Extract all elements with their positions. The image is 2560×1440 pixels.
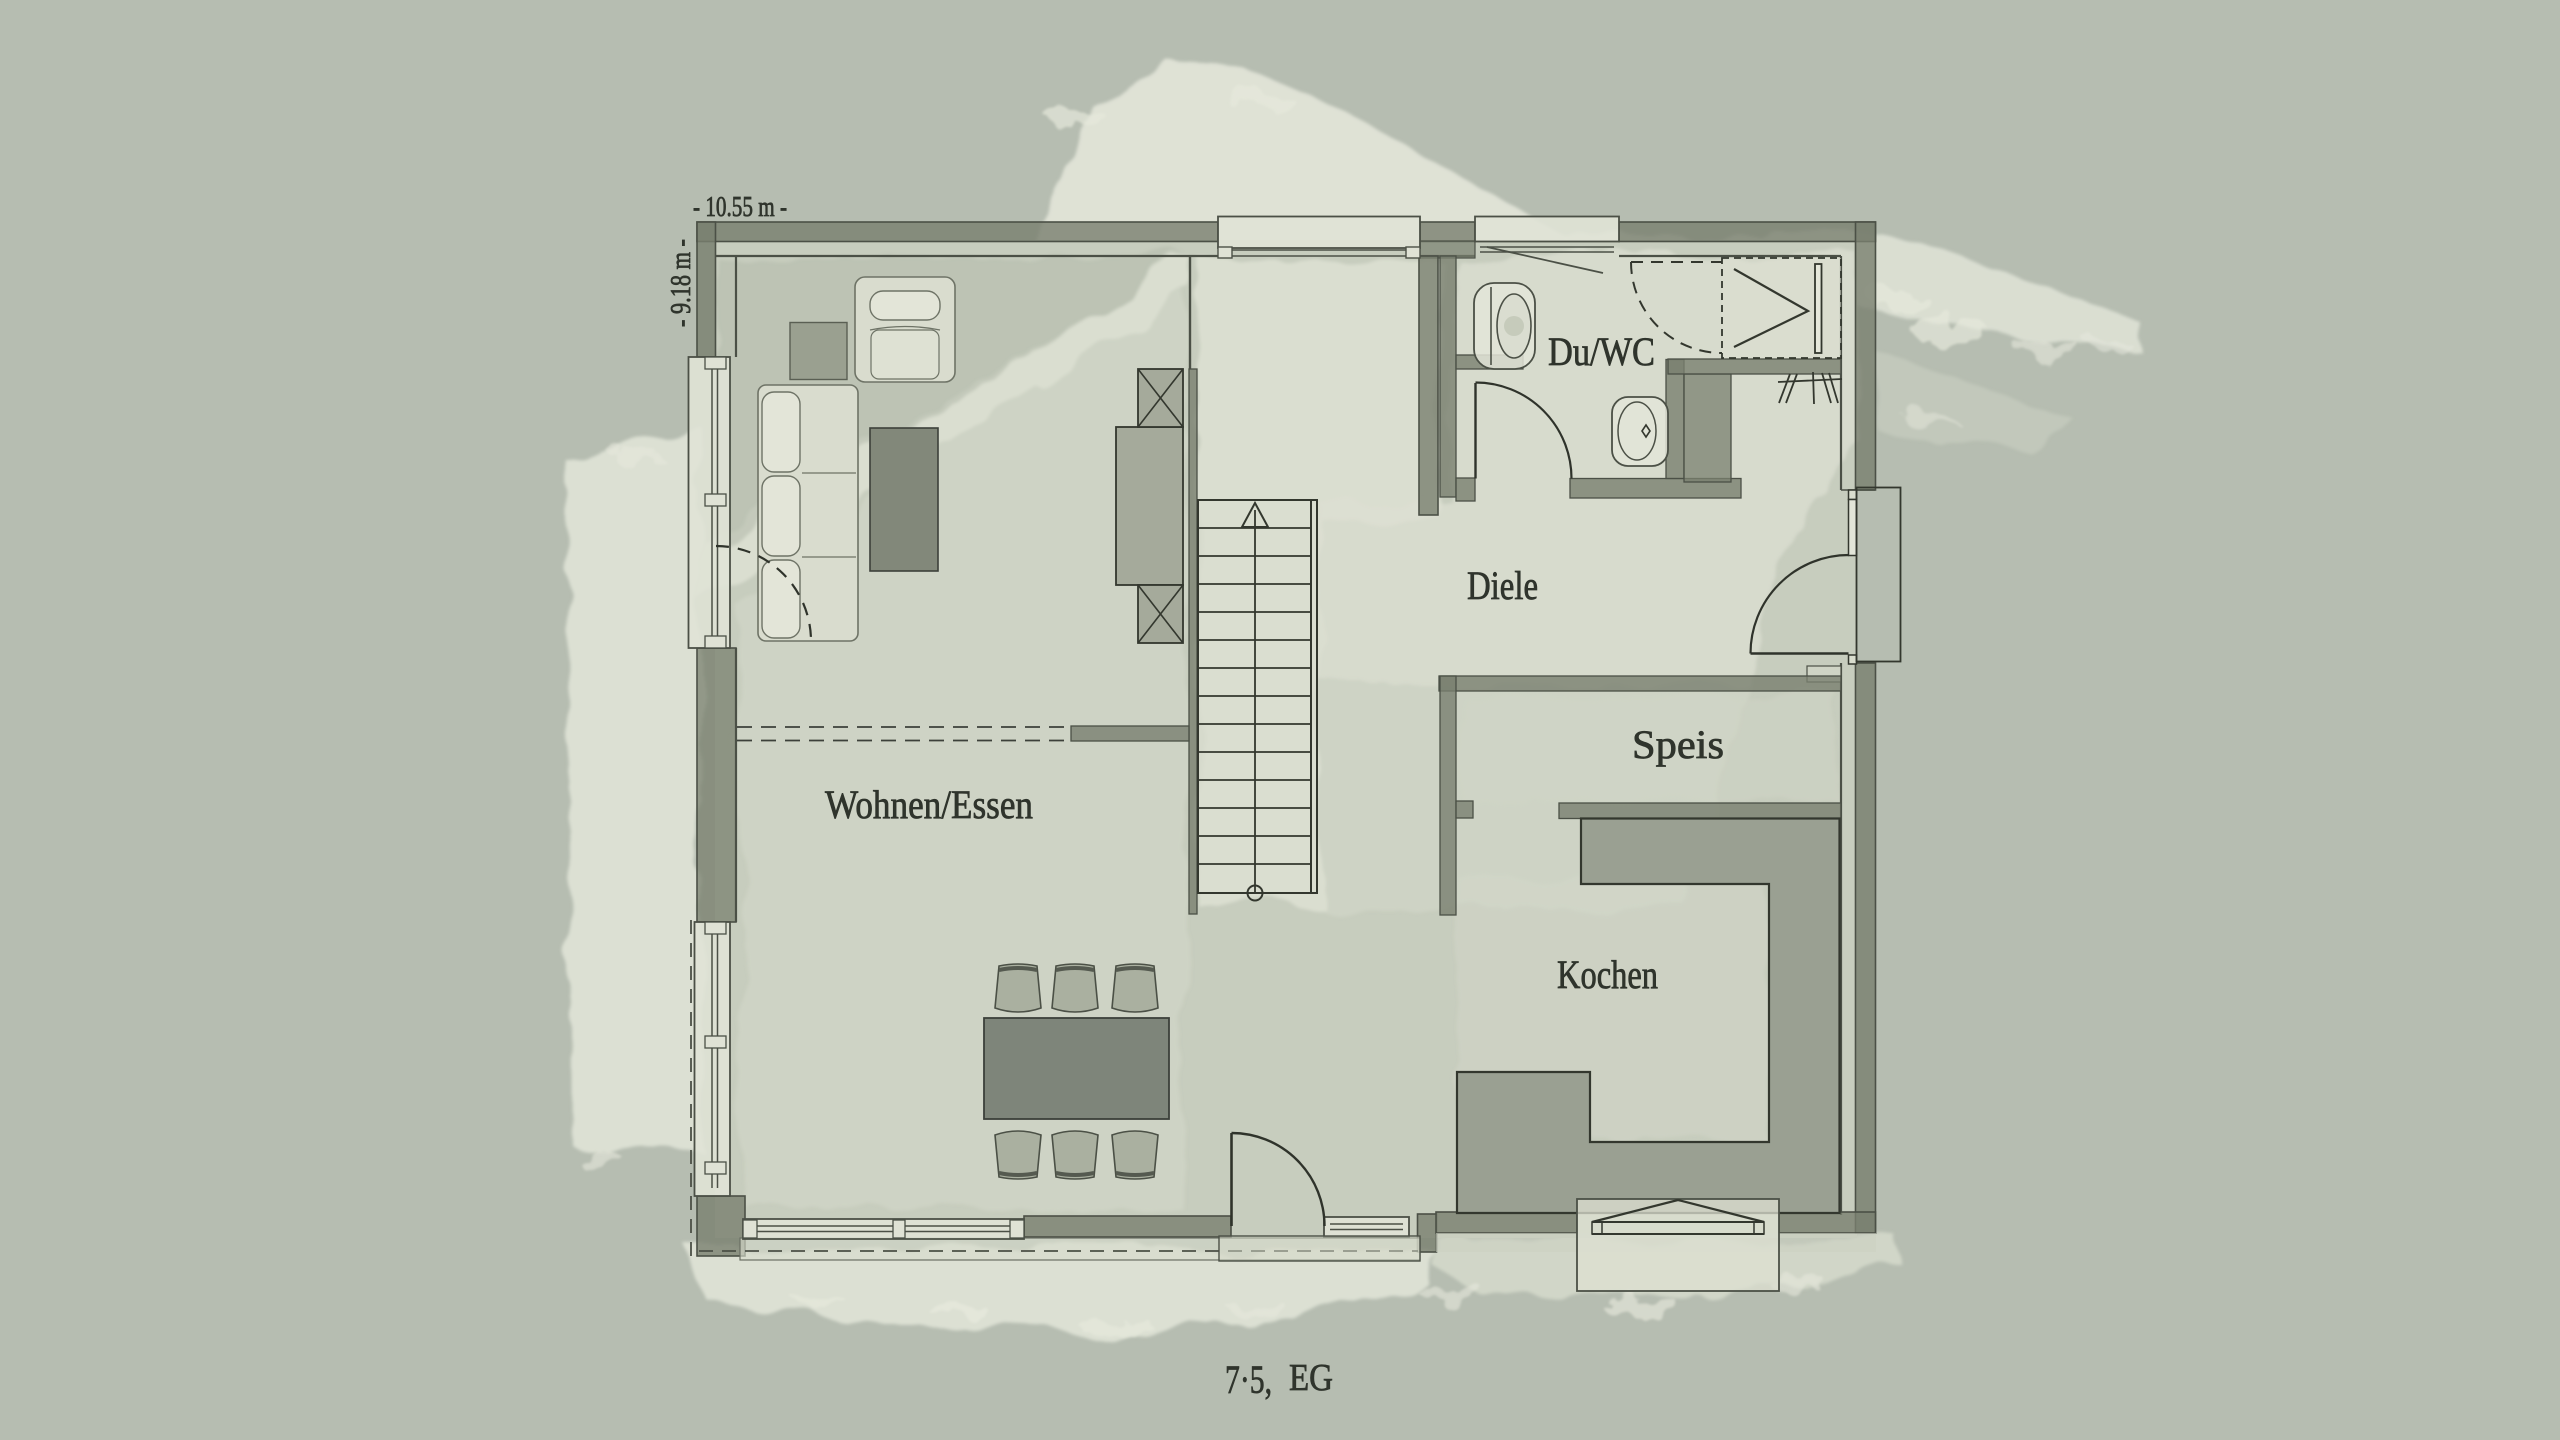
svg-text:- 9.18 m -: - 9.18 m -	[666, 239, 697, 327]
svg-text:Diele: Diele	[1467, 563, 1538, 608]
svg-text:Kochen: Kochen	[1557, 952, 1658, 997]
svg-text:EG: EG	[1289, 1357, 1333, 1399]
svg-text:Wohnen/Essen: Wohnen/Essen	[825, 782, 1033, 827]
svg-text:7·5,: 7·5,	[1225, 1357, 1272, 1402]
svg-text:Speis: Speis	[1632, 722, 1724, 767]
svg-text:Du/WC: Du/WC	[1548, 329, 1655, 374]
svg-text:- 10.55 m -: - 10.55 m -	[693, 192, 787, 223]
